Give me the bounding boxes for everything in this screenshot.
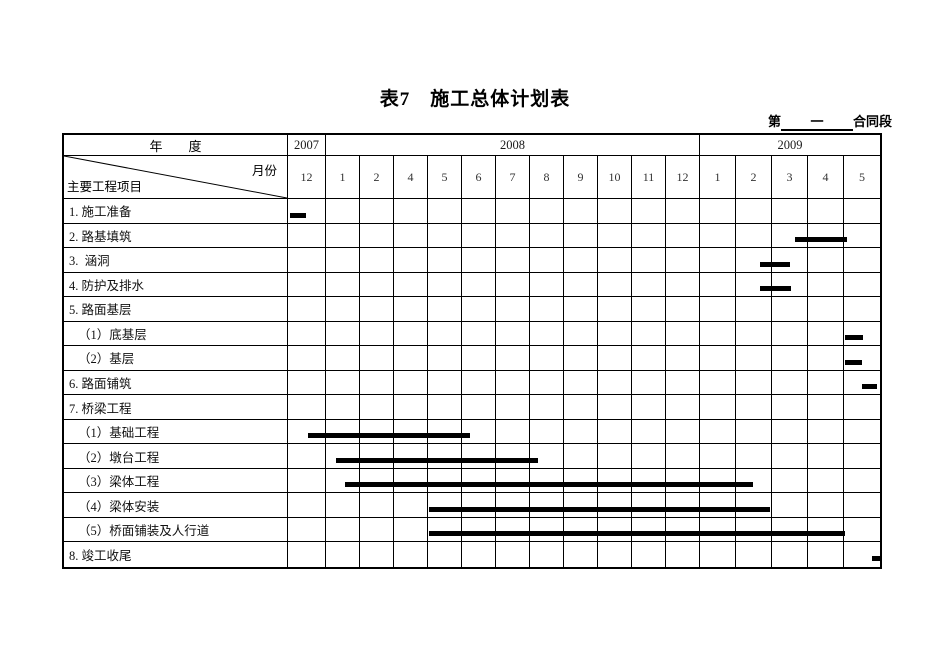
gantt-cell	[496, 469, 530, 493]
gantt-cell	[394, 322, 428, 346]
gantt-cell	[598, 297, 632, 321]
year-cells: 200720082009	[288, 135, 880, 155]
gantt-cell	[666, 248, 700, 272]
gantt-cell	[326, 518, 360, 542]
gantt-cell	[598, 395, 632, 419]
gantt-cell	[808, 248, 844, 272]
gantt-cell	[772, 322, 808, 346]
gantt-cell	[462, 199, 496, 223]
gantt-cell	[736, 493, 772, 517]
gantt-cell	[632, 224, 666, 248]
gantt-cell	[360, 224, 394, 248]
gantt-cell	[772, 297, 808, 321]
gantt-cell	[598, 199, 632, 223]
gantt-cell	[462, 542, 496, 567]
gantt-cell	[564, 199, 598, 223]
row-label: （4）梁体安装	[64, 493, 288, 517]
gantt-cell	[598, 493, 632, 517]
gantt-cell	[564, 248, 598, 272]
gantt-cell	[496, 199, 530, 223]
gantt-bar	[336, 458, 538, 463]
gantt-cell	[428, 346, 462, 370]
gantt-cell	[564, 444, 598, 468]
gantt-cell	[288, 322, 326, 346]
gantt-cell	[564, 493, 598, 517]
gantt-cell	[700, 542, 736, 567]
gantt-cell	[530, 518, 564, 542]
gantt-cell	[844, 395, 880, 419]
gantt-cell	[632, 518, 666, 542]
gantt-cell	[462, 273, 496, 297]
gantt-cell	[808, 542, 844, 567]
gantt-cell	[700, 322, 736, 346]
month-cell: 12	[288, 156, 326, 198]
gantt-cell	[394, 273, 428, 297]
gantt-bar	[429, 531, 845, 536]
gantt-cell	[428, 542, 462, 567]
gantt-cell	[496, 444, 530, 468]
gantt-bar	[290, 213, 306, 218]
gantt-cell	[700, 297, 736, 321]
gantt-cell	[808, 493, 844, 517]
gantt-cell	[326, 346, 360, 370]
gantt-cell	[666, 395, 700, 419]
gantt-cell	[666, 444, 700, 468]
gantt-cell	[288, 371, 326, 395]
contract-section-label: 第一合同段	[768, 111, 892, 131]
row-label: 2. 路基填筑	[64, 224, 288, 248]
gantt-cell	[700, 469, 736, 493]
gantt-cell	[598, 469, 632, 493]
gantt-cell	[736, 346, 772, 370]
gantt-cell	[564, 518, 598, 542]
month-cell: 12	[666, 156, 700, 198]
gantt-cell	[632, 322, 666, 346]
gantt-cell	[462, 469, 496, 493]
gantt-cell	[666, 493, 700, 517]
table-row: （3）梁体工程	[64, 469, 880, 494]
gantt-cell	[496, 346, 530, 370]
row-label: 4. 防护及排水	[64, 273, 288, 297]
gantt-cell	[394, 297, 428, 321]
gantt-cell	[462, 395, 496, 419]
gantt-cell	[360, 273, 394, 297]
month-axis-label: 月份	[252, 160, 277, 179]
gantt-cell	[360, 346, 394, 370]
gantt-cell	[772, 493, 808, 517]
gantt-cell	[530, 199, 564, 223]
row-label: 8. 竣工收尾	[64, 542, 288, 567]
row-label: （1）底基层	[64, 322, 288, 346]
gantt-cell	[360, 420, 394, 444]
gantt-cell	[462, 297, 496, 321]
table-row: （4）梁体安装	[64, 493, 880, 518]
month-cell: 8	[530, 156, 564, 198]
gantt-bar	[872, 556, 880, 561]
gantt-cell	[844, 371, 880, 395]
gantt-cell	[496, 395, 530, 419]
table-row: （5）桥面铺装及人行道	[64, 518, 880, 543]
gantt-cell	[428, 469, 462, 493]
gantt-cell	[530, 224, 564, 248]
gantt-cell	[564, 420, 598, 444]
gantt-cell	[772, 542, 808, 567]
gantt-cell	[632, 469, 666, 493]
gantt-cell	[360, 371, 394, 395]
gantt-cell	[496, 273, 530, 297]
gantt-cell	[598, 248, 632, 272]
gantt-cell	[666, 518, 700, 542]
gantt-cell	[632, 346, 666, 370]
gantt-cell	[360, 322, 394, 346]
gantt-cell	[772, 248, 808, 272]
year-cell: 2007	[288, 135, 326, 155]
gantt-cell	[462, 444, 496, 468]
gantt-cell	[844, 273, 880, 297]
table-row: 6. 路面铺筑	[64, 371, 880, 396]
gantt-cell	[808, 420, 844, 444]
month-cell: 9	[564, 156, 598, 198]
year-cell: 2008	[326, 135, 700, 155]
month-cell: 10	[598, 156, 632, 198]
gantt-cell	[428, 297, 462, 321]
gantt-cell	[462, 371, 496, 395]
gantt-cell	[530, 493, 564, 517]
gantt-cell	[394, 395, 428, 419]
gantt-cell	[844, 469, 880, 493]
gantt-cell	[632, 248, 666, 272]
gantt-cell	[736, 420, 772, 444]
gantt-cell	[394, 444, 428, 468]
gantt-cell	[462, 322, 496, 346]
gantt-cell	[360, 248, 394, 272]
month-cell: 4	[808, 156, 844, 198]
gantt-cell	[530, 371, 564, 395]
gantt-cell	[772, 420, 808, 444]
contract-prefix: 第	[768, 114, 781, 129]
gantt-cell	[632, 273, 666, 297]
gantt-cell	[736, 297, 772, 321]
row-label: 3. 涵洞	[64, 248, 288, 272]
gantt-cell	[844, 297, 880, 321]
gantt-cell	[632, 297, 666, 321]
gantt-cell	[736, 248, 772, 272]
table-row: 5. 路面基层	[64, 297, 880, 322]
gantt-cell	[666, 542, 700, 567]
gantt-cell	[666, 224, 700, 248]
table-row: （1）底基层	[64, 322, 880, 347]
gantt-bar	[308, 433, 470, 438]
gantt-cell	[360, 395, 394, 419]
gantt-cell	[700, 420, 736, 444]
gantt-cell	[844, 248, 880, 272]
gantt-cell	[632, 199, 666, 223]
gantt-cell	[496, 493, 530, 517]
gantt-cell	[564, 297, 598, 321]
gantt-cell	[564, 542, 598, 567]
gantt-cell	[288, 420, 326, 444]
gantt-cell	[530, 469, 564, 493]
gantt-cell	[666, 469, 700, 493]
month-cells: 121245678910111212345	[288, 156, 880, 198]
gantt-cell	[844, 199, 880, 223]
gantt-cell	[428, 322, 462, 346]
gantt-cell	[666, 371, 700, 395]
gantt-cell	[772, 395, 808, 419]
gantt-cell	[808, 395, 844, 419]
gantt-cell	[666, 322, 700, 346]
diagonal-header-cell: 月份 主要工程项目	[64, 156, 288, 198]
gantt-cell	[808, 297, 844, 321]
gantt-cell	[808, 322, 844, 346]
gantt-cell	[666, 199, 700, 223]
schedule-table: 年 度 200720082009 月份 主要工程项目 1212456789101…	[62, 133, 882, 569]
row-label: （2）墩台工程	[64, 444, 288, 468]
gantt-cell	[394, 420, 428, 444]
gantt-cell	[808, 199, 844, 223]
row-label: （2）基层	[64, 346, 288, 370]
gantt-cell	[326, 493, 360, 517]
gantt-cell	[326, 297, 360, 321]
gantt-cell	[844, 444, 880, 468]
gantt-cell	[736, 395, 772, 419]
gantt-cell	[736, 542, 772, 567]
gantt-cell	[428, 199, 462, 223]
gantt-cell	[462, 518, 496, 542]
gantt-cell	[288, 444, 326, 468]
month-header-row: 月份 主要工程项目 121245678910111212345	[64, 156, 880, 199]
gantt-cell	[326, 199, 360, 223]
gantt-cell	[632, 542, 666, 567]
gantt-cell	[394, 224, 428, 248]
gantt-cell	[360, 199, 394, 223]
gantt-bar	[795, 237, 847, 242]
gantt-cell	[598, 518, 632, 542]
table-row: 3. 涵洞	[64, 248, 880, 273]
gantt-cell	[736, 444, 772, 468]
row-label: （5）桥面铺装及人行道	[64, 518, 288, 542]
gantt-cell	[598, 322, 632, 346]
gantt-cell	[772, 444, 808, 468]
gantt-cell	[428, 420, 462, 444]
gantt-cell	[530, 346, 564, 370]
gantt-cell	[564, 224, 598, 248]
gantt-cell	[326, 444, 360, 468]
gantt-cell	[598, 224, 632, 248]
gantt-cell	[428, 248, 462, 272]
gantt-cell	[772, 199, 808, 223]
gantt-cell	[844, 420, 880, 444]
gantt-cell	[360, 297, 394, 321]
page-title: 表7 施工总体计划表	[0, 84, 950, 111]
gantt-cell	[360, 493, 394, 517]
gantt-cell	[496, 542, 530, 567]
gantt-cell	[496, 420, 530, 444]
gantt-cell	[394, 199, 428, 223]
gantt-cell	[700, 493, 736, 517]
table-row: 1. 施工准备	[64, 199, 880, 224]
contract-blank-underline: 一	[781, 114, 853, 131]
gantt-cell	[564, 395, 598, 419]
gantt-cell	[288, 248, 326, 272]
gantt-cell	[360, 542, 394, 567]
gantt-cell	[564, 469, 598, 493]
gantt-cell	[496, 322, 530, 346]
gantt-cell	[428, 273, 462, 297]
gantt-cell	[288, 469, 326, 493]
gantt-cell	[700, 273, 736, 297]
gantt-cell	[844, 224, 880, 248]
table-row: （2）基层	[64, 346, 880, 371]
gantt-cell	[326, 469, 360, 493]
gantt-bar	[760, 286, 791, 291]
gantt-cell	[428, 444, 462, 468]
gantt-cell	[326, 248, 360, 272]
gantt-cell	[772, 518, 808, 542]
gantt-cell	[288, 542, 326, 567]
year-axis-label: 年 度	[64, 135, 288, 155]
gantt-cell	[462, 420, 496, 444]
gantt-cell	[394, 248, 428, 272]
gantt-cell	[700, 518, 736, 542]
gantt-cell	[736, 469, 772, 493]
gantt-cell	[428, 518, 462, 542]
gantt-cell	[564, 346, 598, 370]
month-cell: 7	[496, 156, 530, 198]
gantt-cell	[808, 224, 844, 248]
gantt-cell	[288, 224, 326, 248]
table-row: 7. 桥梁工程	[64, 395, 880, 420]
month-cell: 5	[844, 156, 880, 198]
gantt-cell	[844, 346, 880, 370]
gantt-cell	[666, 346, 700, 370]
gantt-cell	[598, 273, 632, 297]
gantt-cell	[394, 371, 428, 395]
month-cell: 6	[462, 156, 496, 198]
gantt-cell	[326, 420, 360, 444]
gantt-cell	[666, 297, 700, 321]
gantt-cell	[808, 518, 844, 542]
gantt-cell	[772, 346, 808, 370]
table-row: （2）墩台工程	[64, 444, 880, 469]
gantt-cell	[288, 395, 326, 419]
gantt-cell	[700, 346, 736, 370]
row-label: 1. 施工准备	[64, 199, 288, 223]
gantt-cell	[496, 248, 530, 272]
gantt-cell	[288, 297, 326, 321]
row-label: 7. 桥梁工程	[64, 395, 288, 419]
gantt-cell	[844, 322, 880, 346]
gantt-cell	[496, 297, 530, 321]
gantt-cell	[462, 346, 496, 370]
gantt-cell	[564, 273, 598, 297]
month-cell: 4	[394, 156, 428, 198]
row-label: （1）基础工程	[64, 420, 288, 444]
gantt-cell	[772, 469, 808, 493]
gantt-cell	[428, 493, 462, 517]
gantt-cell	[808, 273, 844, 297]
gantt-cell	[632, 444, 666, 468]
row-label: 5. 路面基层	[64, 297, 288, 321]
gantt-cell	[736, 199, 772, 223]
gantt-cell	[598, 371, 632, 395]
gantt-cell	[632, 420, 666, 444]
year-header-row: 年 度 200720082009	[64, 135, 880, 156]
gantt-cell	[736, 322, 772, 346]
gantt-bar	[345, 482, 753, 487]
gantt-cell	[772, 273, 808, 297]
gantt-cell	[632, 493, 666, 517]
table-row: 2. 路基填筑	[64, 224, 880, 249]
gantt-bar	[845, 360, 862, 365]
month-cell: 3	[772, 156, 808, 198]
gantt-cell	[428, 371, 462, 395]
gantt-cell	[564, 322, 598, 346]
gantt-cell	[326, 273, 360, 297]
table-row: （1）基础工程	[64, 420, 880, 445]
table-row: 4. 防护及排水	[64, 273, 880, 298]
gantt-cell	[496, 224, 530, 248]
gantt-cell	[666, 273, 700, 297]
gantt-cell	[736, 273, 772, 297]
gantt-cell	[598, 542, 632, 567]
gantt-cell	[288, 518, 326, 542]
gantt-cell	[496, 371, 530, 395]
gantt-cell	[462, 224, 496, 248]
gantt-cell	[326, 371, 360, 395]
gantt-cell	[700, 395, 736, 419]
gantt-cell	[288, 346, 326, 370]
row-label: 6. 路面铺筑	[64, 371, 288, 395]
gantt-cell	[394, 469, 428, 493]
gantt-cell	[844, 493, 880, 517]
gantt-cell	[394, 542, 428, 567]
gantt-cell	[394, 346, 428, 370]
document-page: 表7 施工总体计划表 第一合同段 年 度 200720082009 月份 主要工…	[0, 0, 950, 672]
gantt-cell	[288, 273, 326, 297]
gantt-cell	[530, 444, 564, 468]
gantt-cell	[666, 420, 700, 444]
table-row: 8. 竣工收尾	[64, 542, 880, 567]
gantt-cell	[808, 444, 844, 468]
month-cell: 2	[736, 156, 772, 198]
gantt-cell	[598, 346, 632, 370]
gantt-cell	[428, 395, 462, 419]
gantt-cell	[564, 371, 598, 395]
gantt-cell	[632, 395, 666, 419]
gantt-cell	[360, 518, 394, 542]
month-cell: 5	[428, 156, 462, 198]
gantt-bar	[862, 384, 876, 389]
gantt-cell	[632, 371, 666, 395]
gantt-cell	[736, 518, 772, 542]
gantt-cell	[530, 273, 564, 297]
gantt-cell	[326, 322, 360, 346]
month-cell: 1	[326, 156, 360, 198]
gantt-cell	[288, 199, 326, 223]
gantt-cell	[530, 322, 564, 346]
month-cell: 1	[700, 156, 736, 198]
gantt-cell	[288, 493, 326, 517]
gantt-cell	[360, 444, 394, 468]
gantt-cell	[772, 224, 808, 248]
gantt-bar	[845, 335, 863, 340]
gantt-cell	[808, 346, 844, 370]
gantt-cell	[598, 420, 632, 444]
gantt-cell	[700, 444, 736, 468]
gantt-cell	[326, 395, 360, 419]
gantt-cell	[772, 371, 808, 395]
